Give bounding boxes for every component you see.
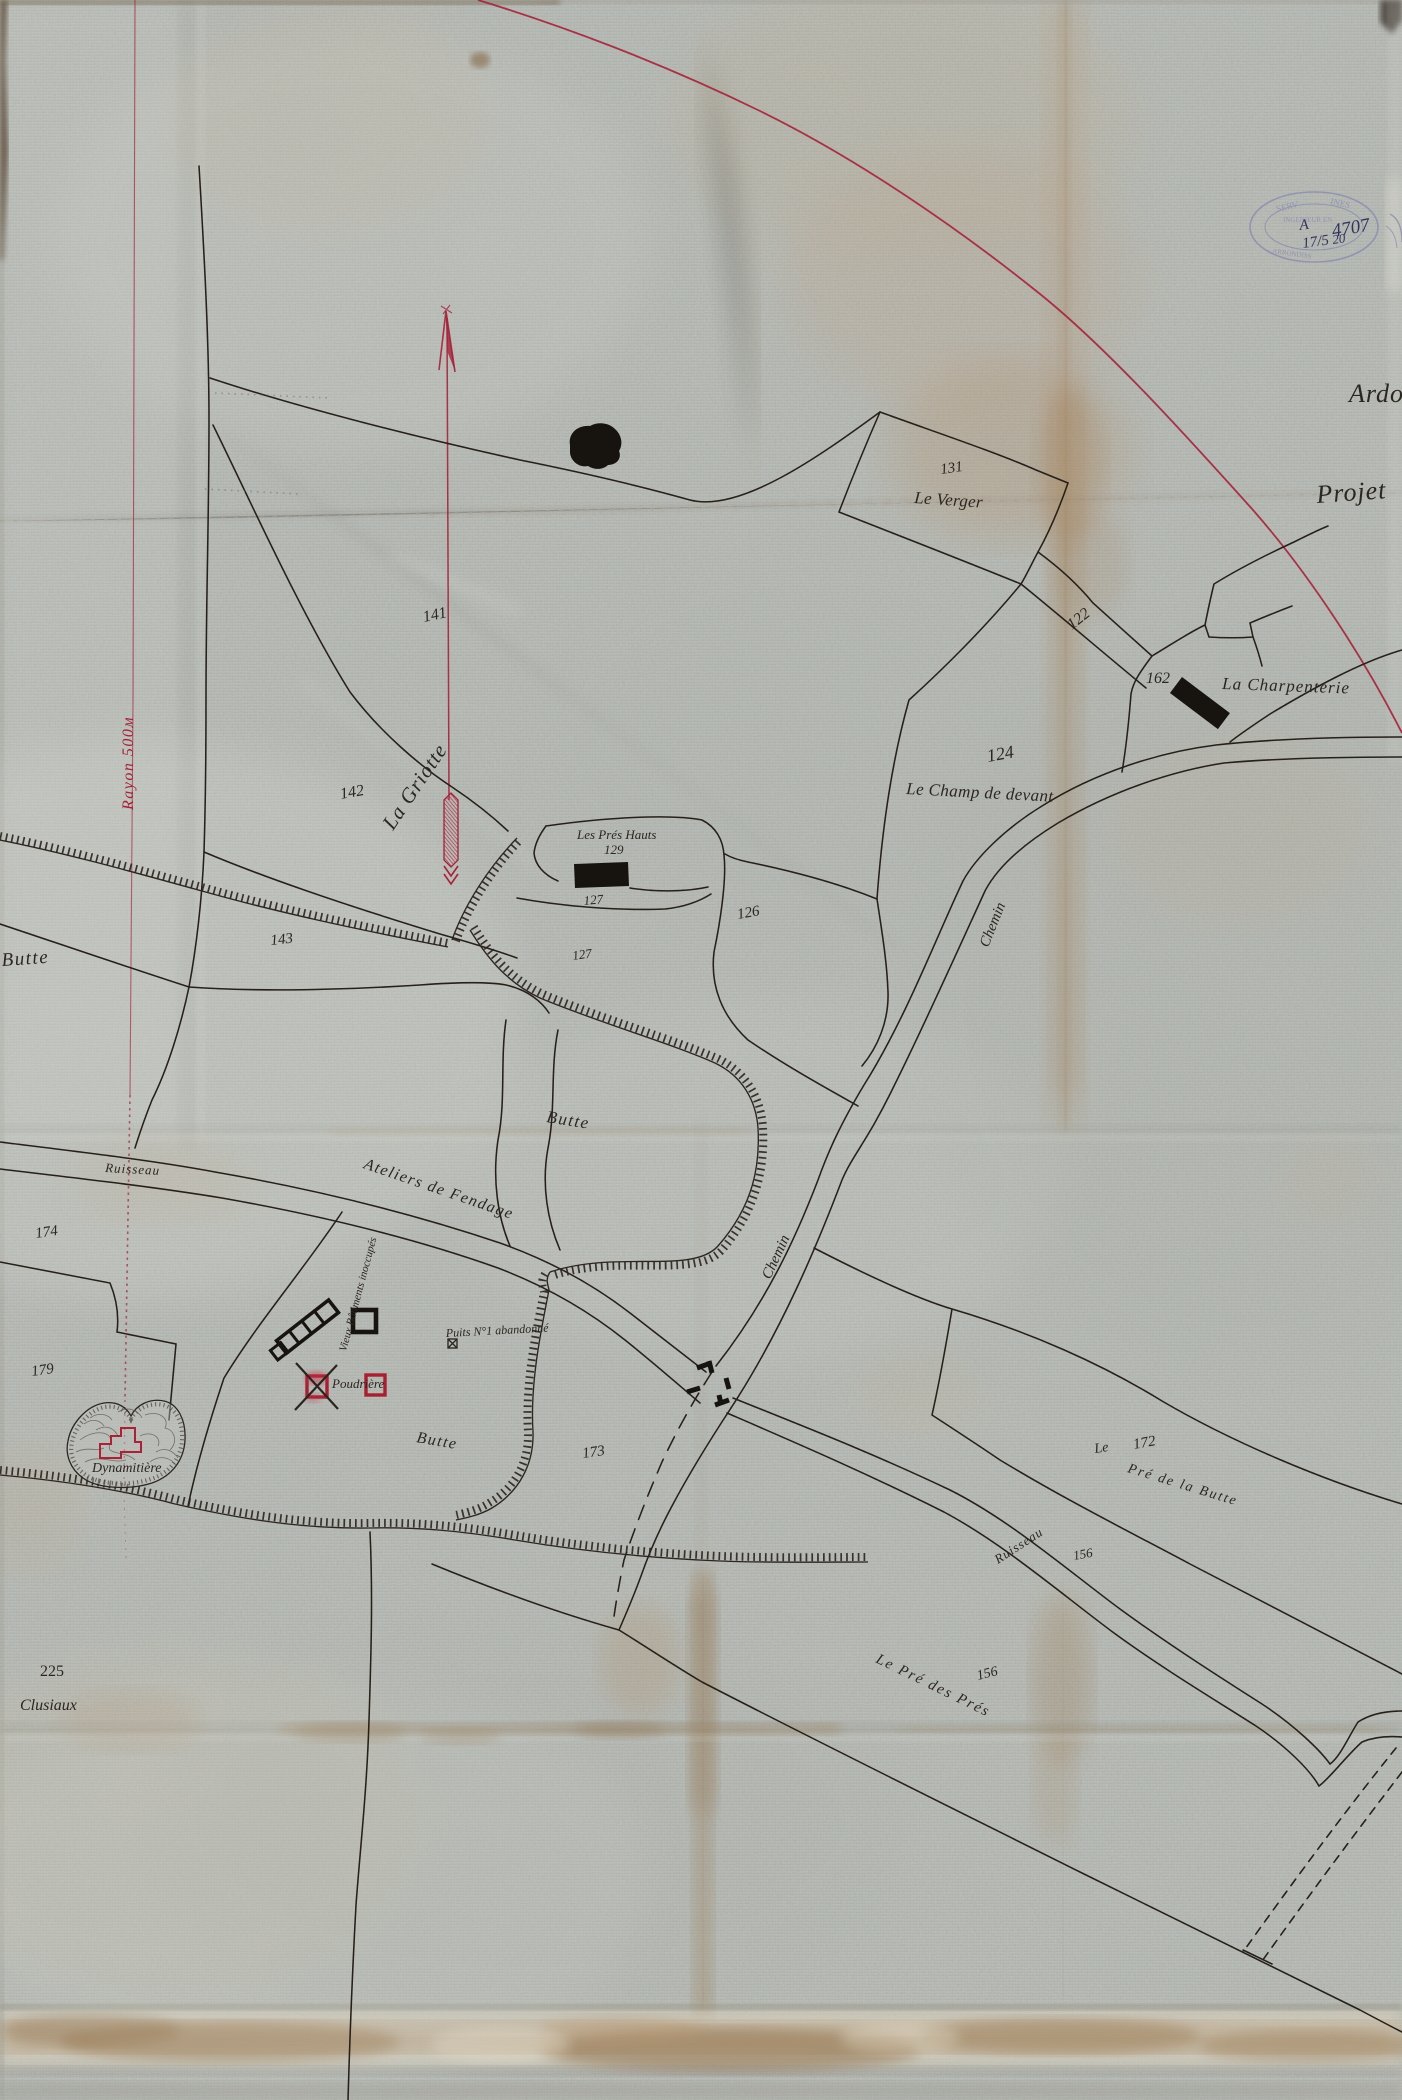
svg-text:Ruisseau: Ruisseau <box>104 1160 161 1178</box>
svg-text:129: 129 <box>604 842 624 857</box>
svg-text:Projet: Projet <box>1314 475 1387 509</box>
svg-text:173: 173 <box>581 1443 606 1462</box>
svg-text:127: 127 <box>571 945 593 963</box>
svg-text:143: 143 <box>270 931 294 949</box>
svg-text:Poudrière: Poudrière <box>331 1376 384 1391</box>
svg-text:127: 127 <box>583 891 604 908</box>
svg-text:Ardoi: Ardoi <box>1347 379 1402 408</box>
svg-text:Le: Le <box>1092 1440 1109 1457</box>
svg-text:Dynamitière: Dynamitière <box>91 1461 161 1476</box>
svg-text:131: 131 <box>939 459 964 478</box>
svg-text:Butte: Butte <box>1 947 50 971</box>
svg-text:174: 174 <box>34 1223 59 1242</box>
svg-text:Rayon 500м: Rayon 500м <box>120 716 137 811</box>
svg-text:225: 225 <box>40 1663 64 1680</box>
svg-text:Les Prés Hauts: Les Prés Hauts <box>576 827 656 842</box>
svg-text:179: 179 <box>30 1361 55 1380</box>
svg-text:162: 162 <box>1146 670 1170 687</box>
svg-text:Clusiaux: Clusiaux <box>20 1697 77 1714</box>
